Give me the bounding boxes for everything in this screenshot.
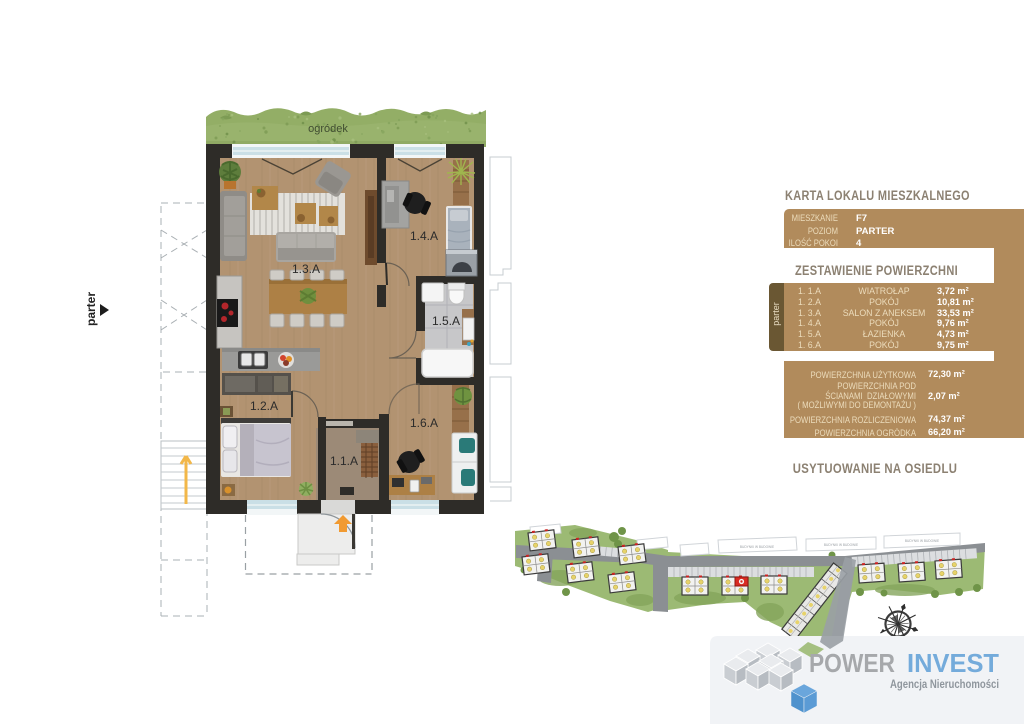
svg-text:1.2.A: 1.2.A: [250, 399, 278, 413]
svg-text:1.1.A: 1.1.A: [330, 454, 358, 468]
svg-text:1.3.A: 1.3.A: [292, 262, 320, 276]
svg-text:ogródek: ogródek: [308, 123, 348, 135]
svg-text:1.5.A: 1.5.A: [432, 314, 460, 328]
svg-text:1.4.A: 1.4.A: [410, 229, 438, 243]
svg-text:BUDYNKI W BUDOWIE: BUDYNKI W BUDOWIE: [824, 543, 858, 547]
svg-text:Agencja Nieruchomości: Agencja Nieruchomości: [890, 677, 999, 691]
svg-text:parter: parter: [84, 292, 98, 326]
svg-text:BUDYNKI W BUDOWIE: BUDYNKI W BUDOWIE: [905, 539, 939, 543]
svg-text:POWER: POWER: [809, 648, 895, 678]
svg-text:BUDYNKI W BUDOWIE: BUDYNKI W BUDOWIE: [740, 545, 774, 549]
svg-text:INVEST: INVEST: [907, 648, 999, 678]
svg-text:1.6.A: 1.6.A: [410, 416, 438, 430]
